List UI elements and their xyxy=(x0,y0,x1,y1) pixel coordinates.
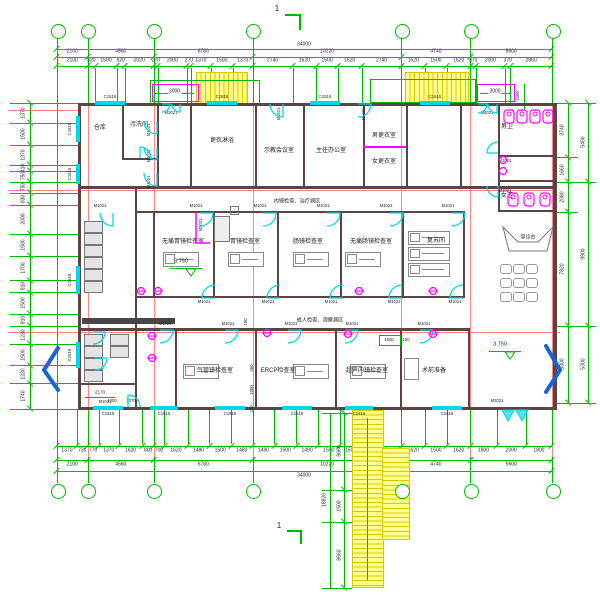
door-tag: M1021 xyxy=(198,300,211,304)
dim-label: 1620 xyxy=(170,449,181,454)
room-label-female-toilet: 女卫 xyxy=(501,193,513,199)
dim-label: 150 xyxy=(244,318,248,325)
dim-label: 1370 xyxy=(103,449,114,454)
dim-label: 1500 xyxy=(22,239,27,250)
axis-line xyxy=(8,332,560,333)
dim-label: 1500 xyxy=(215,449,226,454)
exam-bed xyxy=(295,254,305,264)
dim-ext xyxy=(316,68,317,103)
room-label-painless-colonoscopy-room: 无痛肠镜检查室 xyxy=(350,239,392,245)
dim-ext xyxy=(125,68,126,103)
door-tag: M1021 xyxy=(325,300,338,304)
door-tag: M1021 xyxy=(388,300,401,304)
dim-ext xyxy=(555,212,578,213)
door-tag: M1021 xyxy=(418,322,431,326)
door-tag: M2021 xyxy=(491,399,504,403)
toilet-fixture-icon xyxy=(530,110,540,123)
window-tag: C1515 xyxy=(291,412,304,416)
exam-bed xyxy=(359,259,375,260)
grid-bubble xyxy=(546,24,561,39)
dim-ext xyxy=(10,205,78,206)
dim-ext xyxy=(338,68,339,103)
grid-line-red xyxy=(470,100,471,457)
door-tag: M1021 xyxy=(442,204,455,208)
dim-label: 1500 xyxy=(323,449,334,454)
window-marker xyxy=(76,266,80,294)
wall xyxy=(175,328,177,409)
dim-label: 1700 xyxy=(22,262,27,273)
level-line xyxy=(170,268,202,269)
wall xyxy=(255,328,257,409)
room-label-storage: 仓库 xyxy=(94,125,106,131)
window-tag: C1515 xyxy=(68,168,72,181)
room-label-soiled-washroom: 污洗间 xyxy=(130,122,148,128)
dim-label: 1370 xyxy=(22,107,27,118)
wall xyxy=(335,328,337,409)
dim-label: 34000 xyxy=(297,474,311,479)
window-marker xyxy=(310,101,340,105)
dim-ext xyxy=(10,292,78,293)
service-outlet-icon xyxy=(428,288,438,295)
dim-label: 2080 xyxy=(561,191,566,202)
waiting-chair xyxy=(513,264,525,274)
dim-label: 1620 xyxy=(453,59,464,64)
dim-ext xyxy=(10,326,78,327)
door-tag: M1021 xyxy=(262,300,275,304)
room-label-gastroscopy-room: 胃镜检查室 xyxy=(230,239,260,245)
wall xyxy=(303,103,305,188)
service-outlet-icon xyxy=(147,355,157,362)
dim-ext xyxy=(88,410,89,444)
window-marker xyxy=(150,406,178,410)
dim-ext xyxy=(555,182,578,183)
door-tag: M1021 xyxy=(222,322,235,326)
window-marker xyxy=(282,406,312,410)
window-tag: C1515 xyxy=(102,412,115,416)
dim-label: 1740 xyxy=(22,391,27,402)
dim-label: 4740 xyxy=(430,463,441,468)
dim-label: 2740 xyxy=(267,59,278,64)
dim-label: 1660 xyxy=(561,164,566,175)
dim-label: 1370 xyxy=(22,149,27,160)
dim-label: 6780 xyxy=(198,50,209,55)
window-tag: C1515 xyxy=(158,412,171,416)
dim-label: 2000 xyxy=(22,214,27,225)
window-marker xyxy=(215,406,245,410)
dim-label: 1500 xyxy=(430,59,441,64)
exam-bed xyxy=(307,259,323,260)
dim-line xyxy=(57,66,552,67)
window-tag: C1515 xyxy=(353,412,366,416)
dim-label: 1490 xyxy=(301,449,312,454)
grid-bubble xyxy=(81,24,96,39)
dim-ext xyxy=(10,256,78,257)
door-tag: M2021 xyxy=(165,111,178,115)
dim-ext xyxy=(10,344,78,345)
dim-label: 230 xyxy=(250,405,254,412)
dim-line xyxy=(57,460,552,461)
window-marker xyxy=(207,101,237,105)
dim-ext xyxy=(88,68,89,103)
window-tag: C1515 xyxy=(104,95,117,99)
wall xyxy=(255,103,257,188)
dim-label: 1370 xyxy=(195,59,206,64)
dim-ext xyxy=(99,410,100,444)
corridor-label: 成人检查、观察病区 xyxy=(297,318,344,323)
level-triangle-icon xyxy=(505,352,515,359)
dim-label: 2100 xyxy=(67,463,78,468)
dim-ext xyxy=(555,326,578,327)
dim-ext xyxy=(318,410,319,444)
dim-label: 2100 xyxy=(67,50,78,55)
dim-ext xyxy=(10,234,78,235)
dim-label: 1620 xyxy=(344,59,355,64)
wall xyxy=(157,103,159,188)
dim-ext xyxy=(555,403,578,404)
dim-ext xyxy=(95,68,96,103)
wall xyxy=(135,328,137,409)
dim-label: 9900 xyxy=(582,248,587,259)
window-marker xyxy=(95,101,125,105)
grid-line xyxy=(154,457,155,483)
dim-ext xyxy=(578,103,596,104)
equipment-box xyxy=(110,334,129,346)
dim-ext xyxy=(253,410,254,444)
dim-line xyxy=(524,84,525,110)
dim-label: 1620 xyxy=(299,59,310,64)
exam-bed xyxy=(307,371,323,372)
partition-line xyxy=(363,146,406,148)
dim-ext xyxy=(578,403,596,404)
window-tag: C1515 xyxy=(216,95,229,99)
dim-ext xyxy=(10,103,78,104)
dim-ext xyxy=(555,103,578,104)
dim-label: 1500 xyxy=(22,297,27,308)
dim-label: 1000 xyxy=(250,385,254,395)
room-label-endoscopic-ultrasound-room: 超声内镜检查室 xyxy=(346,368,388,374)
door-arc xyxy=(487,142,498,153)
window-tag: C1515 xyxy=(441,412,454,416)
equipment-cart xyxy=(404,358,419,380)
corridor-label: 内镜检查、治疗病区 xyxy=(274,199,321,204)
waiting-chair xyxy=(500,264,512,274)
axis-line xyxy=(8,110,78,111)
grid-bubble xyxy=(395,24,410,39)
dim-ext xyxy=(154,410,155,444)
toilet-fixture-icon xyxy=(517,110,527,123)
wall xyxy=(78,383,135,385)
dim-ext xyxy=(293,68,294,103)
room-label-painless-gastroscopy-room: 无痛胃镜检查室 xyxy=(162,239,204,245)
wall xyxy=(553,103,557,410)
grid-line xyxy=(253,457,254,483)
room-label-female-changing-room: 女更衣室 xyxy=(372,159,396,165)
dim-label: 1070 xyxy=(126,399,136,403)
window-tag: C1515 xyxy=(429,95,442,99)
door-tag: M1021 xyxy=(285,322,298,326)
wall xyxy=(498,155,557,157)
dim-label: 370 xyxy=(503,59,511,64)
dim-ext xyxy=(526,410,527,444)
dim-label: 1500 xyxy=(101,59,112,64)
equipment-box xyxy=(84,334,103,346)
window-marker xyxy=(345,406,373,410)
wall xyxy=(460,103,462,188)
dim-ext xyxy=(57,68,58,103)
door-tag: M1021 xyxy=(346,322,359,326)
wall xyxy=(402,211,404,298)
dim-label: 1230 xyxy=(22,369,27,380)
dim-label: 150 xyxy=(402,338,409,342)
dim-label: 1370 xyxy=(61,449,72,454)
service-outlet-icon xyxy=(262,330,272,337)
dim-label: 1500 xyxy=(338,500,343,511)
dim-ext xyxy=(552,68,553,103)
window-marker xyxy=(76,116,80,142)
dim-label: 1800 xyxy=(533,449,544,454)
exam-bed xyxy=(295,366,305,376)
equipment-box xyxy=(110,346,129,358)
dim-ext xyxy=(10,383,78,384)
grid-bubble xyxy=(546,484,561,499)
dim-ext xyxy=(188,410,189,444)
door-tag: M1021 xyxy=(147,176,151,189)
dim-ext xyxy=(578,326,596,327)
window-tag: C1515 xyxy=(319,95,332,99)
exam-bed xyxy=(185,366,195,376)
grid-bubble xyxy=(51,484,66,499)
dim-ext xyxy=(10,193,78,194)
door-tag: M1021 xyxy=(499,159,512,163)
waiting-chair xyxy=(500,292,512,302)
dim-label: 2000 xyxy=(485,59,496,64)
room-label-demo-meeting-room: 示教会议室 xyxy=(264,148,294,154)
room-label-male-toilet: 男卫 xyxy=(501,124,513,130)
dim-ext xyxy=(119,410,120,444)
room-label-guide-desk: 导诊台 xyxy=(520,236,535,241)
dim-label: 810 xyxy=(22,282,27,290)
axis-line xyxy=(8,190,557,191)
dim-label: 1000 xyxy=(384,338,394,342)
grid-bubble xyxy=(464,24,479,39)
door-tag: M1021 xyxy=(449,300,462,304)
grid-bubble xyxy=(51,24,66,39)
dim-ext xyxy=(57,410,58,444)
door-tag: M2021 xyxy=(481,111,494,115)
equipment-box xyxy=(84,346,103,358)
dim-label: 1620 xyxy=(453,449,464,454)
dim-ext xyxy=(497,410,498,444)
wall xyxy=(135,186,137,330)
waiting-chair xyxy=(500,278,512,288)
toilet-fixture-icon xyxy=(524,193,534,206)
dim-line xyxy=(568,103,569,403)
wall xyxy=(406,103,408,188)
exam-bed xyxy=(410,233,420,242)
dim-label: 10220 xyxy=(320,463,334,468)
dim-line xyxy=(330,413,331,588)
wall xyxy=(340,211,342,298)
window-tag: C1515 xyxy=(68,274,72,287)
dim-ext xyxy=(322,588,352,589)
dim-line xyxy=(57,57,552,58)
dim-ext xyxy=(10,314,78,315)
dim-label: 8660 xyxy=(338,445,343,456)
exam-bed xyxy=(410,265,420,274)
exam-bed xyxy=(422,253,444,254)
wall xyxy=(135,296,463,298)
dim-ext xyxy=(555,157,578,158)
equipment-box xyxy=(84,257,103,269)
dim-label: 18820 xyxy=(323,493,328,507)
dim-ext xyxy=(362,68,363,103)
level-triangle-icon xyxy=(186,269,196,276)
section-mark xyxy=(285,14,300,16)
wall xyxy=(498,180,557,182)
dim-label: 2000 xyxy=(506,449,517,454)
sterilizer-box xyxy=(214,216,230,242)
dim-label: 10220 xyxy=(320,50,334,55)
window-marker xyxy=(432,406,462,410)
grid-line-red xyxy=(253,100,254,457)
room-label-colonoscopy-room: 肠镜检查室 xyxy=(293,239,323,245)
grid-bubble xyxy=(395,484,410,499)
dim-label: 8660 xyxy=(338,549,343,560)
dim-ext xyxy=(425,410,426,444)
section-mark xyxy=(300,530,302,544)
dim-ext xyxy=(322,413,352,414)
dim-label: 520 xyxy=(87,59,95,64)
dim-label: 2860 xyxy=(526,59,537,64)
waiting-chair xyxy=(526,264,538,274)
dim-label: 34000 xyxy=(297,42,311,47)
dim-ext xyxy=(274,410,275,444)
door-tag: M1021 xyxy=(362,108,366,121)
equipment-box xyxy=(84,370,103,382)
exam-bed xyxy=(347,254,357,264)
dim-ext xyxy=(552,410,553,444)
door-tag: M1021 xyxy=(277,108,281,121)
stair-centerline xyxy=(367,418,368,580)
grid-bubble xyxy=(464,484,479,499)
window-marker xyxy=(93,406,123,410)
room-label-ercp-room: ERCP检查室 xyxy=(261,368,296,374)
wall xyxy=(153,211,155,298)
service-outlet-icon xyxy=(354,288,364,295)
toilet-fixture-icon xyxy=(540,193,550,206)
dim-label: 5300 xyxy=(582,359,587,370)
waiting-chair xyxy=(526,278,538,288)
window-marker xyxy=(420,101,450,105)
dim-label: 1620 xyxy=(408,59,419,64)
dim-label: 1230 xyxy=(22,329,27,340)
wall xyxy=(468,328,470,409)
equipment-box xyxy=(84,233,103,245)
level-label: 3.750 xyxy=(493,342,507,348)
dim-ext xyxy=(470,410,471,444)
dim-ext xyxy=(77,410,78,444)
grid-line xyxy=(470,457,471,483)
dim-ext xyxy=(117,68,118,103)
section-number: 1 xyxy=(277,522,281,530)
section-number: 1 xyxy=(275,5,279,13)
grid-bubble xyxy=(246,24,261,39)
window-tag: C1515 xyxy=(224,412,237,416)
service-outlet-icon xyxy=(136,288,146,295)
equipment-box xyxy=(84,245,103,257)
window-tag: C1515 xyxy=(68,349,72,362)
dim-label: 3740 xyxy=(561,125,566,136)
door-tag: M1021 xyxy=(190,204,203,208)
grid-bubble xyxy=(147,484,162,499)
grid-line xyxy=(88,457,89,483)
dim-ext xyxy=(10,409,78,410)
wall xyxy=(122,103,124,160)
wall xyxy=(122,158,157,160)
door-arc xyxy=(263,213,276,226)
door-tag: M2021 xyxy=(199,219,203,232)
stair xyxy=(352,410,384,588)
service-outlet-icon xyxy=(147,333,157,340)
dim-label: 1480 xyxy=(193,449,204,454)
dim-label: 1500 xyxy=(280,449,291,454)
grid-bubble xyxy=(81,484,96,499)
dim-label: 1480 xyxy=(236,449,247,454)
window-tag: C1515 xyxy=(68,123,72,136)
waiting-chair xyxy=(513,292,525,302)
dim-ext xyxy=(209,410,210,444)
dim-label: 2740 xyxy=(376,59,387,64)
dim-label: 3000 xyxy=(488,90,501,95)
toilet-fixture-icon xyxy=(504,110,514,123)
dim-line xyxy=(344,413,345,588)
equipment-box xyxy=(84,281,103,293)
dim-label: 1500 xyxy=(22,128,27,139)
exam-bed xyxy=(422,269,444,270)
wall xyxy=(277,211,279,298)
dim-label: 1500 xyxy=(216,59,227,64)
wall xyxy=(190,103,192,188)
dim-ext xyxy=(322,522,352,523)
wall xyxy=(135,211,463,213)
equipment-box xyxy=(84,358,103,370)
dim-label: 4560 xyxy=(115,50,126,55)
dim-line xyxy=(57,49,552,50)
dim-ext xyxy=(10,145,78,146)
exam-bed xyxy=(242,259,258,260)
level-label: 3.750 xyxy=(174,259,188,265)
door-arc xyxy=(327,213,340,226)
dim-label: 5400 xyxy=(582,137,587,148)
waiting-chair xyxy=(526,292,538,302)
window-marker xyxy=(76,164,80,184)
level-line xyxy=(489,351,521,352)
dim-line xyxy=(588,103,589,403)
room-label-bronchoscopy-room: 气管镜检查室 xyxy=(197,368,233,374)
dim-label: 6780 xyxy=(198,463,209,468)
section-mark xyxy=(299,14,301,30)
dim-label: 2000 xyxy=(167,59,178,64)
room-label-recovery-room: 复苏间 xyxy=(427,238,445,244)
dim-label: 5600 xyxy=(506,463,517,468)
door-tag: M1021 xyxy=(254,204,267,208)
dim-label: 1500 xyxy=(430,449,441,454)
dim-ext xyxy=(401,410,402,444)
dim-label: 1490 xyxy=(258,449,269,454)
dim-label: 1620 xyxy=(125,449,136,454)
dim-ext xyxy=(10,365,78,366)
exam-bed xyxy=(410,249,420,258)
